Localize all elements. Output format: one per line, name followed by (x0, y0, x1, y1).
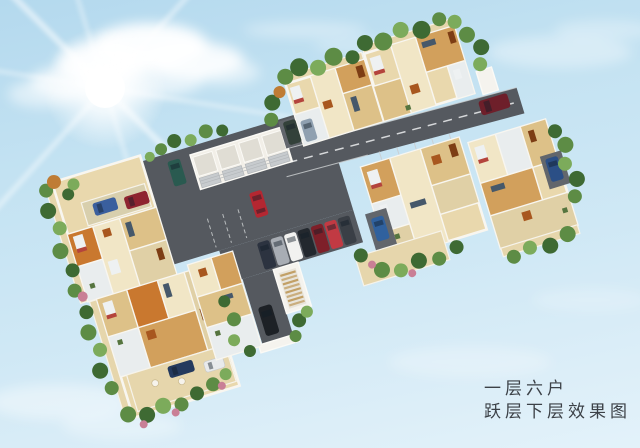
rendering-image: 一层六户 跃层下层效果图 (0, 0, 640, 448)
caption-line-1: 一层六户 (484, 377, 631, 400)
caption: 一层六户 跃层下层效果图 (484, 377, 631, 423)
unit-3 (331, 138, 492, 286)
caption-line-2: 跃层下层效果图 (484, 400, 631, 423)
